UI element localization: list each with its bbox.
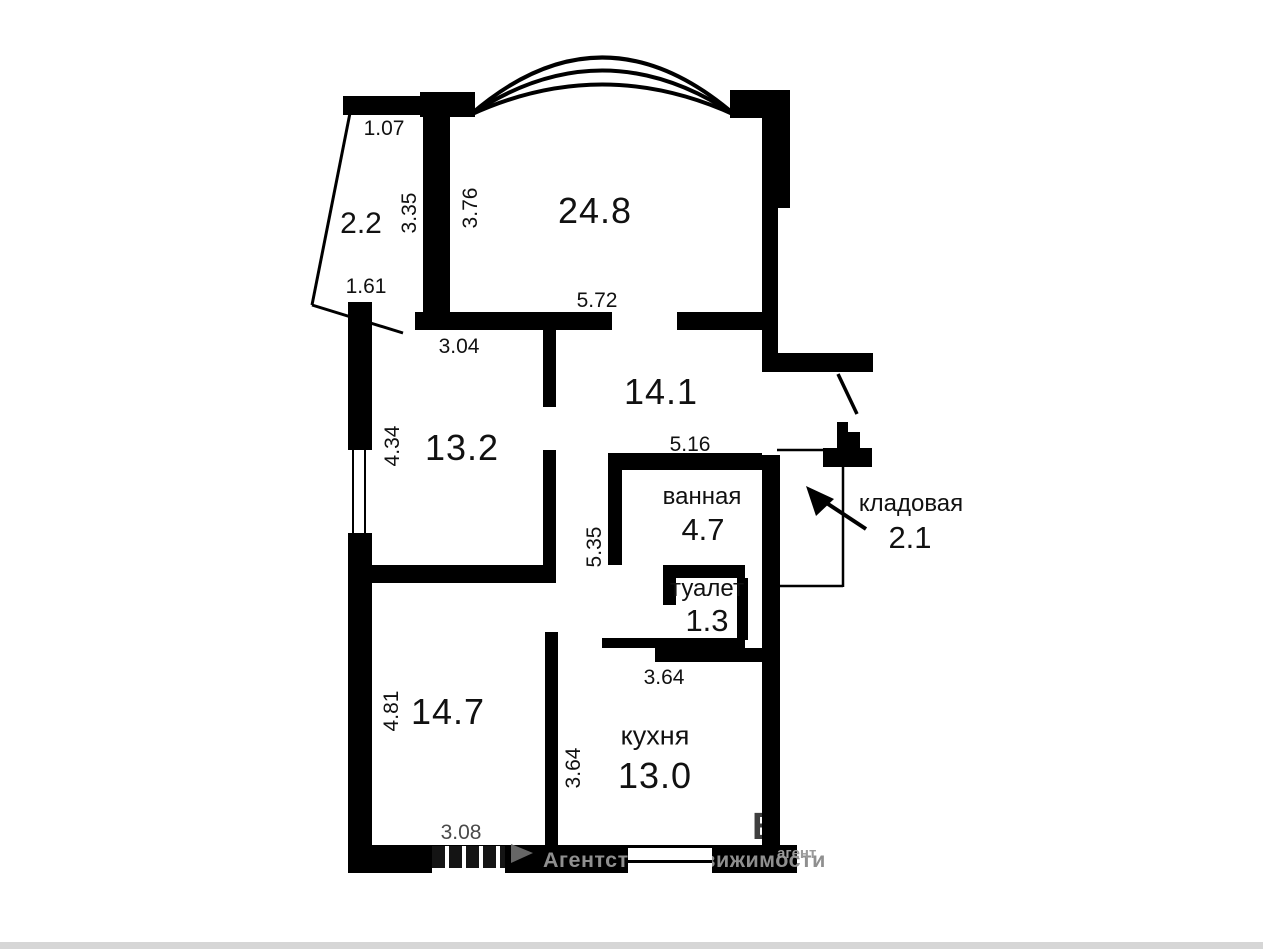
dim-label: 5.72: [577, 289, 618, 313]
watermark-logo-fragment: [432, 846, 505, 868]
wall: [343, 96, 430, 115]
wall: [543, 318, 556, 407]
dim-label: 3.04: [439, 335, 480, 359]
dim-label: 3.76: [459, 188, 483, 229]
entrance-pier: [823, 448, 872, 467]
bay-window-arc: [470, 71, 735, 116]
wall: [762, 110, 790, 208]
wall: [677, 312, 770, 330]
page-edge: [0, 942, 1263, 949]
wall: [543, 450, 556, 577]
bay-window-arc: [470, 85, 735, 116]
window-glass-line: [352, 450, 354, 533]
dim-label: 1.07: [364, 117, 405, 141]
watermark-logo-triangle: [511, 844, 533, 863]
window: [346, 450, 373, 533]
dim-label: 3.08: [441, 821, 482, 845]
plan-lines: [0, 0, 1263, 949]
dim-label: 4.81: [380, 691, 404, 732]
window-glass-line: [364, 450, 366, 533]
wall: [655, 638, 745, 662]
dim-label: 5.16: [670, 433, 711, 457]
dim-label: 4.34: [381, 426, 405, 467]
wall: [602, 638, 655, 648]
wall: [765, 353, 873, 372]
dim-label: 1.61: [346, 275, 387, 299]
wall: [545, 632, 558, 845]
bedroom2-area-label: 14.7: [411, 691, 485, 733]
floor-plan: В 24.8 2.2 13.2 14.1 ванная 4.7 туалет 1…: [0, 0, 1263, 949]
kitchen-name-label: кухня: [621, 721, 690, 752]
watermark-fragment-text: агент: [777, 845, 816, 862]
hall-area-label: 14.1: [624, 371, 698, 413]
bathroom-area-label: 4.7: [681, 512, 724, 548]
wall: [415, 312, 612, 330]
storage-area-label: 2.1: [888, 520, 931, 556]
outer-wall-left: [348, 302, 372, 873]
wall: [608, 453, 622, 565]
outer-wall-right: [762, 455, 780, 873]
entrance-door-swing: [838, 374, 857, 414]
entrance-arrow-head: [806, 486, 834, 516]
dim-label: 3.64: [562, 748, 586, 789]
toilet-name-label: туалет: [670, 575, 744, 603]
bedroom1-area-label: 13.2: [425, 427, 499, 469]
wall: [362, 565, 556, 583]
living-area-label: 24.8: [558, 190, 632, 232]
storage-name-label: кладовая: [859, 490, 963, 518]
wall: [762, 208, 778, 372]
window-glass-line: [628, 860, 712, 863]
toilet-area-label: 1.3: [685, 603, 728, 639]
wall: [423, 92, 450, 330]
kitchen-area-label: 13.0: [618, 755, 692, 797]
dim-label: 3.35: [398, 193, 422, 234]
balcony-area-label: 2.2: [340, 207, 382, 241]
bathroom-name-label: ванная: [663, 483, 742, 511]
dim-label: 5.35: [583, 527, 607, 568]
dim-label: 3.64: [644, 666, 685, 690]
